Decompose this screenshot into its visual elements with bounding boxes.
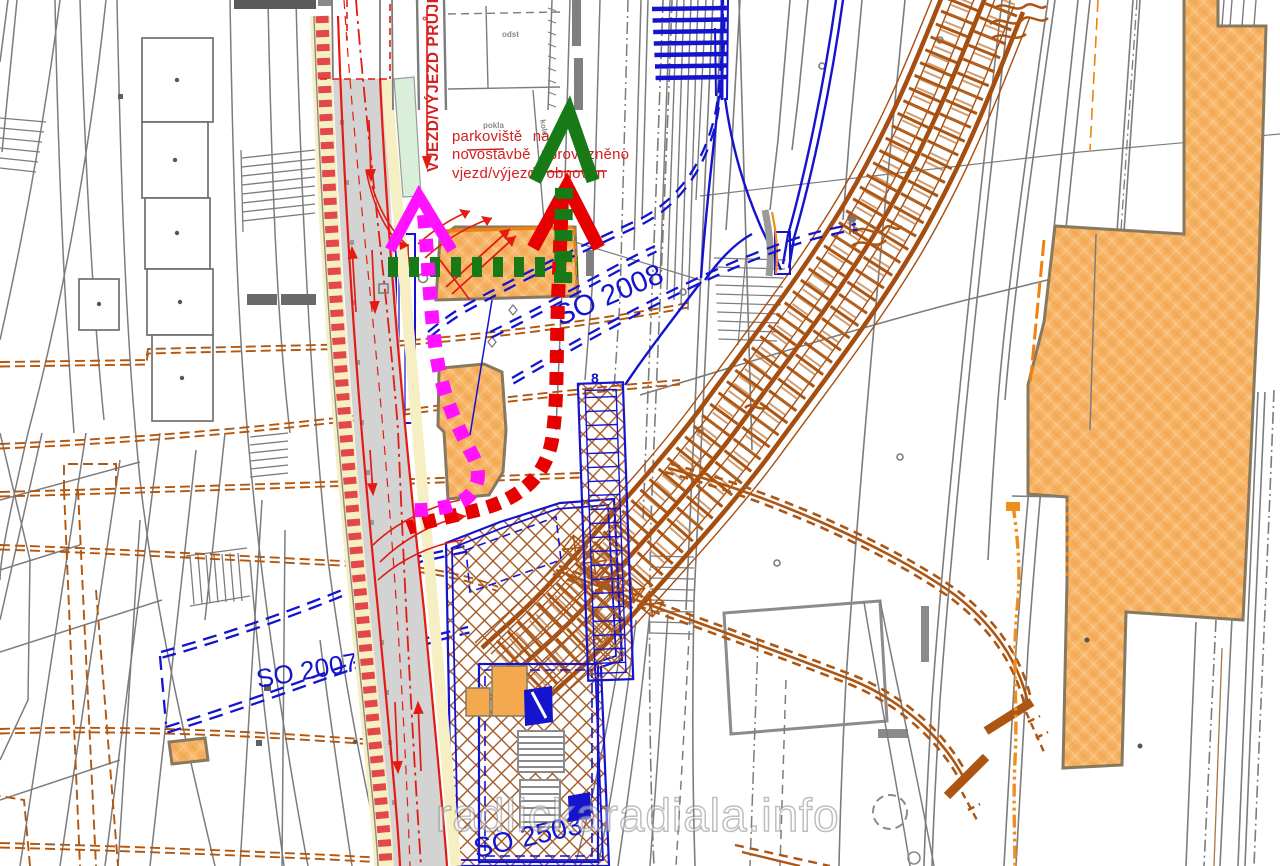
svg-text:radlickaradiala.info: radlickaradiala.info xyxy=(436,789,840,841)
svg-text:odst: odst xyxy=(502,30,519,39)
svg-text:8: 8 xyxy=(591,370,599,386)
svg-text:VJEZD/VÝJEZD PRŮJEZD: VJEZD/VÝJEZD PRŮJEZD xyxy=(423,0,442,172)
svg-text:parkoviště na: parkoviště na xyxy=(452,128,550,145)
